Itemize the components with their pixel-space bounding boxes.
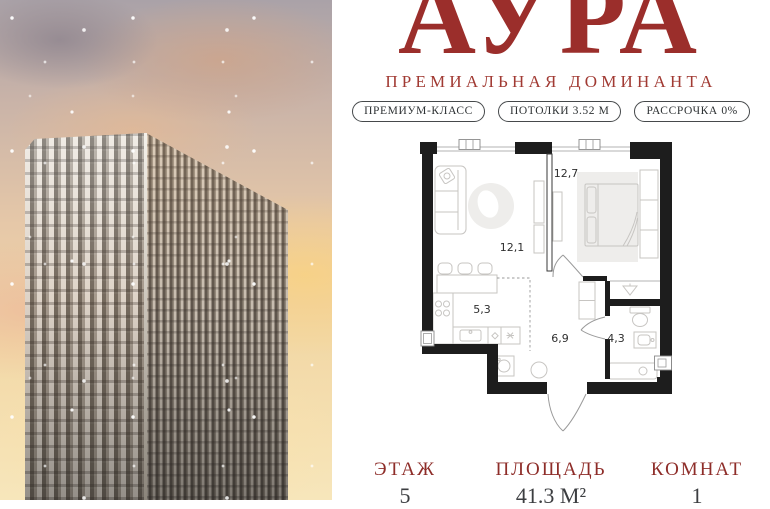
floor-plan: 12,1 12,7 5,3 6,9 4,3 (390, 134, 690, 434)
listing-card: АУРА ПРЕМИАЛЬНАЯ ДОМИНАНТА ПРЕМИУМ-КЛАСС… (0, 0, 770, 500)
facts-row: ЭТАЖ 5 ПЛОЩАДЬ 41.3 М² КОМНАТ 1 (332, 459, 770, 509)
info-panel: АУРА ПРЕМИАЛЬНАЯ ДОМИНАНТА ПРЕМИУМ-КЛАСС… (332, 0, 770, 500)
brand-subtitle: ПРЕМИАЛЬНАЯ ДОМИНАНТА (332, 72, 770, 92)
badge-row: ПРЕМИУМ-КЛАСС ПОТОЛКИ 3.52 М РАССРОЧКА 0… (332, 101, 770, 122)
badge-installment: РАССРОЧКА 0% (634, 101, 749, 122)
room-area-bedroom: 12,7 (554, 167, 579, 180)
brand-title: АУРА (332, 0, 770, 72)
room-area-hallway: 6,9 (551, 332, 569, 345)
room-area-bathroom: 4,3 (607, 332, 625, 345)
badge-premium-class: ПРЕМИУМ-КЛАСС (352, 101, 485, 122)
room-area-kitchen: 5,3 (473, 303, 491, 316)
tower-corner-edge (144, 133, 147, 500)
fact-area-label: ПЛОЩАДЬ (478, 459, 624, 481)
fact-rooms-value: 1 (624, 483, 770, 509)
badge-ceiling-height: ПОТОЛКИ 3.52 М (498, 101, 622, 122)
tower-side-facade (146, 133, 288, 500)
fact-area-value: 41.3 М² (478, 483, 624, 509)
kitchen-zone-dashed-line (497, 278, 530, 351)
tower-front-facade (25, 133, 146, 500)
fact-floor-label: ЭТАЖ (332, 459, 478, 481)
tower-render (0, 0, 332, 500)
fact-rooms-label: КОМНАТ (624, 459, 770, 481)
floor-plan-svg: 12,1 12,7 5,3 6,9 4,3 (390, 134, 690, 434)
fact-area: ПЛОЩАДЬ 41.3 М² (478, 459, 624, 509)
fact-rooms: КОМНАТ 1 (624, 459, 770, 509)
room-area-living-room: 12,1 (500, 241, 525, 254)
fact-floor-value: 5 (332, 483, 478, 509)
living-bedroom-divider-wall (547, 154, 552, 271)
fact-floor: ЭТАЖ 5 (332, 459, 478, 509)
building-photo (0, 0, 332, 500)
